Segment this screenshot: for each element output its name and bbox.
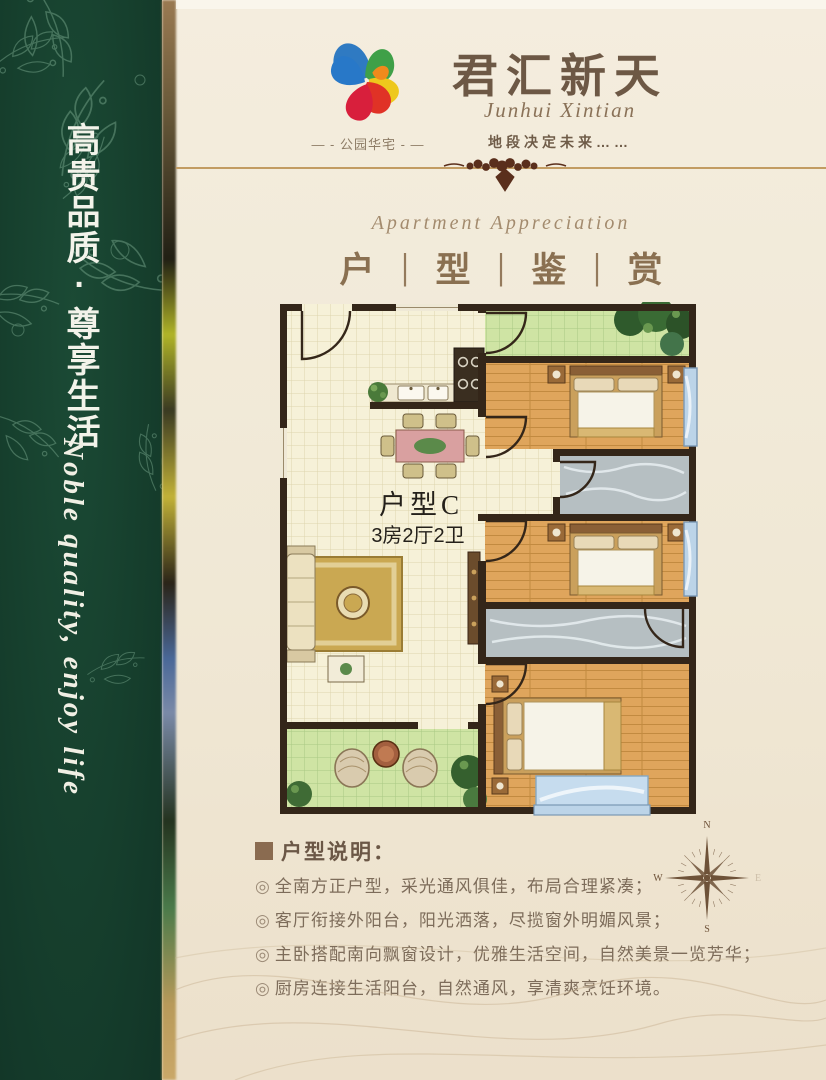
separator-bar: | <box>594 247 601 289</box>
section-title-chinese: 户 | 型 | 鉴 | 赏 <box>176 242 826 293</box>
list-item-text: 全南方正户型，采光通风俱佳，布局合理紧凑； <box>275 877 653 896</box>
divider-ornament-icon <box>428 153 582 195</box>
plant-icon <box>368 382 388 402</box>
bathroom2-floor <box>485 609 691 657</box>
description-heading: 户型说明： <box>255 836 396 866</box>
left-banner: 高贵品质·尊享生活 Noble quality, enjoy life <box>0 0 162 1080</box>
section-char: 鉴 <box>532 242 567 293</box>
decorative-swirls <box>175 928 826 1080</box>
unit-spec: 3房2厅2卫 <box>371 524 464 547</box>
brand-tagline: 地段决定未来…… <box>442 132 678 152</box>
slogan-english: Noble quality, enjoy life <box>56 438 89 1058</box>
slogan-chinese: 高贵品质·尊享生活 <box>56 122 105 452</box>
unit-label: 户型C <box>379 490 463 520</box>
section-char: 户 <box>339 242 374 293</box>
poster: { "sidebar": { "slogan_cn": "高贵品质·尊享生活",… <box>0 0 826 1080</box>
section-char: 赏 <box>628 242 663 293</box>
section-marker-icon <box>255 842 273 860</box>
separator-bar: | <box>497 247 504 289</box>
floorplan-drawing: 户型C 3房2厅2卫 <box>278 302 698 822</box>
brand-subtitle: Junhui Xintian <box>438 98 682 123</box>
brand-flower-logo-icon <box>313 26 421 134</box>
separator-bar: | <box>401 247 408 289</box>
photo-strip <box>162 0 176 1080</box>
top-band <box>176 0 826 9</box>
bathroom1-floor <box>560 454 690 516</box>
compass-north-label: N <box>703 820 710 831</box>
compass-west-label: W <box>653 873 663 884</box>
brand-title: 君汇新天 <box>446 40 674 106</box>
section-char: 型 <box>435 242 470 293</box>
compass-icon: N W S E <box>648 816 766 934</box>
compass-east-label: E <box>755 873 761 884</box>
section-title-english: Apartment Appreciation <box>176 212 826 235</box>
bullet-icon: ◎ <box>255 877 271 896</box>
description-heading-text: 户型说明： <box>281 836 396 866</box>
logo-label: — - 公园华宅 - — <box>286 134 450 153</box>
